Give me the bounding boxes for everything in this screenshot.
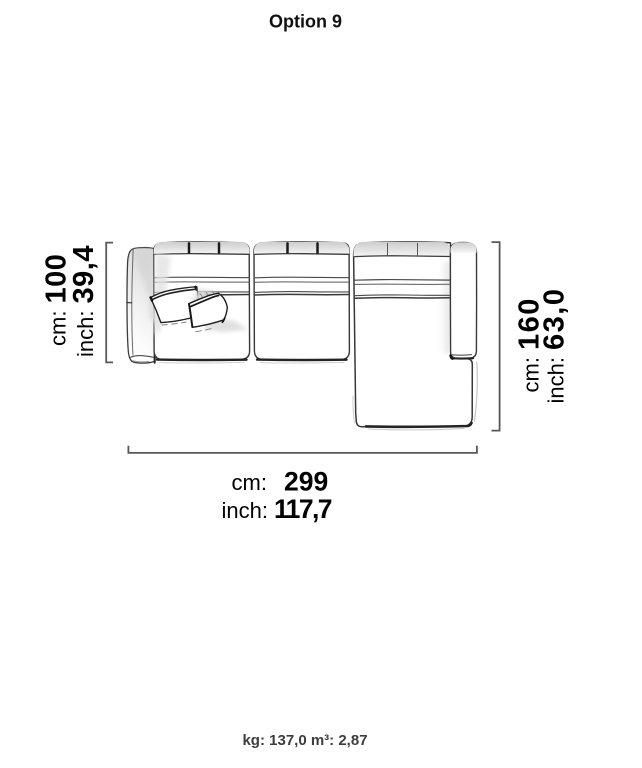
svg-text:cm:: cm: <box>46 311 71 346</box>
svg-text:inch:: inch: <box>222 498 268 523</box>
svg-text:cm:: cm: <box>232 470 267 495</box>
svg-text:63,0: 63,0 <box>539 288 571 350</box>
svg-text:Option 9: Option 9 <box>269 12 342 32</box>
svg-text:39,4: 39,4 <box>68 245 100 303</box>
svg-text:kg: 137,0 m³: 2,87: kg: 137,0 m³: 2,87 <box>242 732 367 749</box>
svg-text:299: 299 <box>284 466 328 496</box>
svg-text:117,7: 117,7 <box>274 494 332 524</box>
svg-text:cm:: cm: <box>519 357 544 392</box>
svg-text:inch:: inch: <box>73 311 98 357</box>
svg-text:inch:: inch: <box>544 357 569 403</box>
